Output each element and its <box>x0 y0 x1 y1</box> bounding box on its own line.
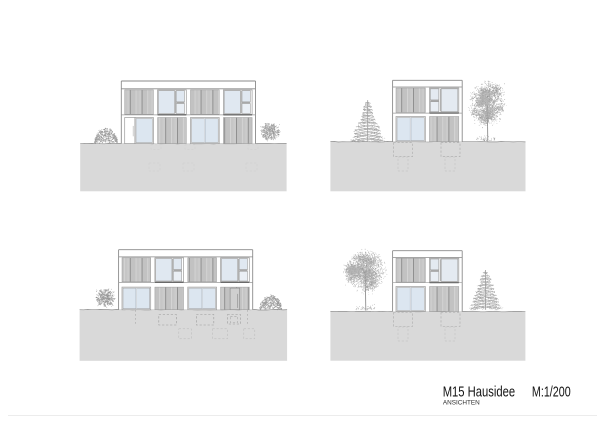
svg-text:ANSICHTEN: ANSICHTEN <box>443 400 480 407</box>
svg-text:M15 Hausidee: M15 Hausidee <box>443 384 516 400</box>
svg-text:M:1/200: M:1/200 <box>532 384 571 400</box>
